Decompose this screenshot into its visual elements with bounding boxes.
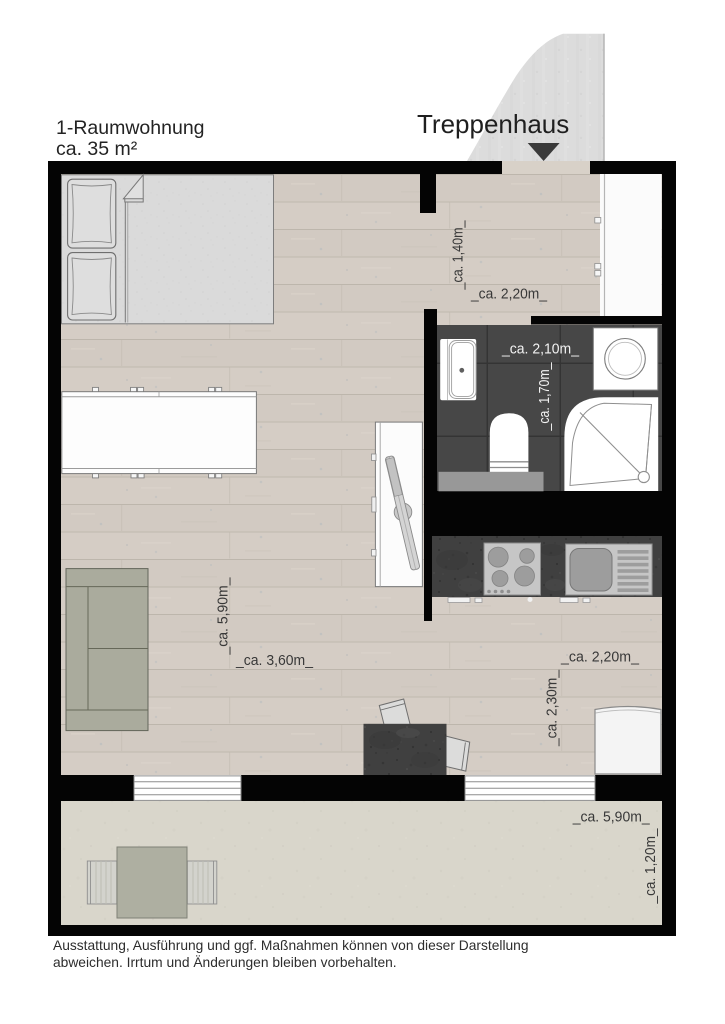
svg-text:Treppenhaus: Treppenhaus <box>417 109 569 139</box>
svg-text:_ca. 1,70m_: _ca. 1,70m_ <box>537 362 553 432</box>
svg-text:_ca. 1,40m_: _ca. 1,40m_ <box>451 220 467 291</box>
svg-text:_ca. 2,20m_: _ca. 2,20m_ <box>560 650 640 666</box>
svg-text:_ca. 5,90m_: _ca. 5,90m_ <box>215 576 231 655</box>
svg-text:_ca. 2,10m_: _ca. 2,10m_ <box>501 342 580 358</box>
svg-text:abweichen. Irrtum und Änderung: abweichen. Irrtum und Änderungen bleiben… <box>53 954 397 970</box>
svg-text:1-Raumwohnung: 1-Raumwohnung <box>56 117 205 139</box>
svg-text:_ca. 2,20m_: _ca. 2,20m_ <box>470 287 548 303</box>
svg-text:Ausstattung, Ausführung und gg: Ausstattung, Ausführung und ggf. Maßnahm… <box>53 938 529 953</box>
svg-text:_ca. 3,60m_: _ca. 3,60m_ <box>235 653 314 669</box>
svg-text:_ca. 2,30m_: _ca. 2,30m_ <box>544 669 560 747</box>
svg-text:_ca. 1,20m_: _ca. 1,20m_ <box>643 828 659 905</box>
svg-text:_ca. 5,90m_: _ca. 5,90m_ <box>572 810 651 826</box>
svg-text:ca. 35 m²: ca. 35 m² <box>56 138 138 160</box>
